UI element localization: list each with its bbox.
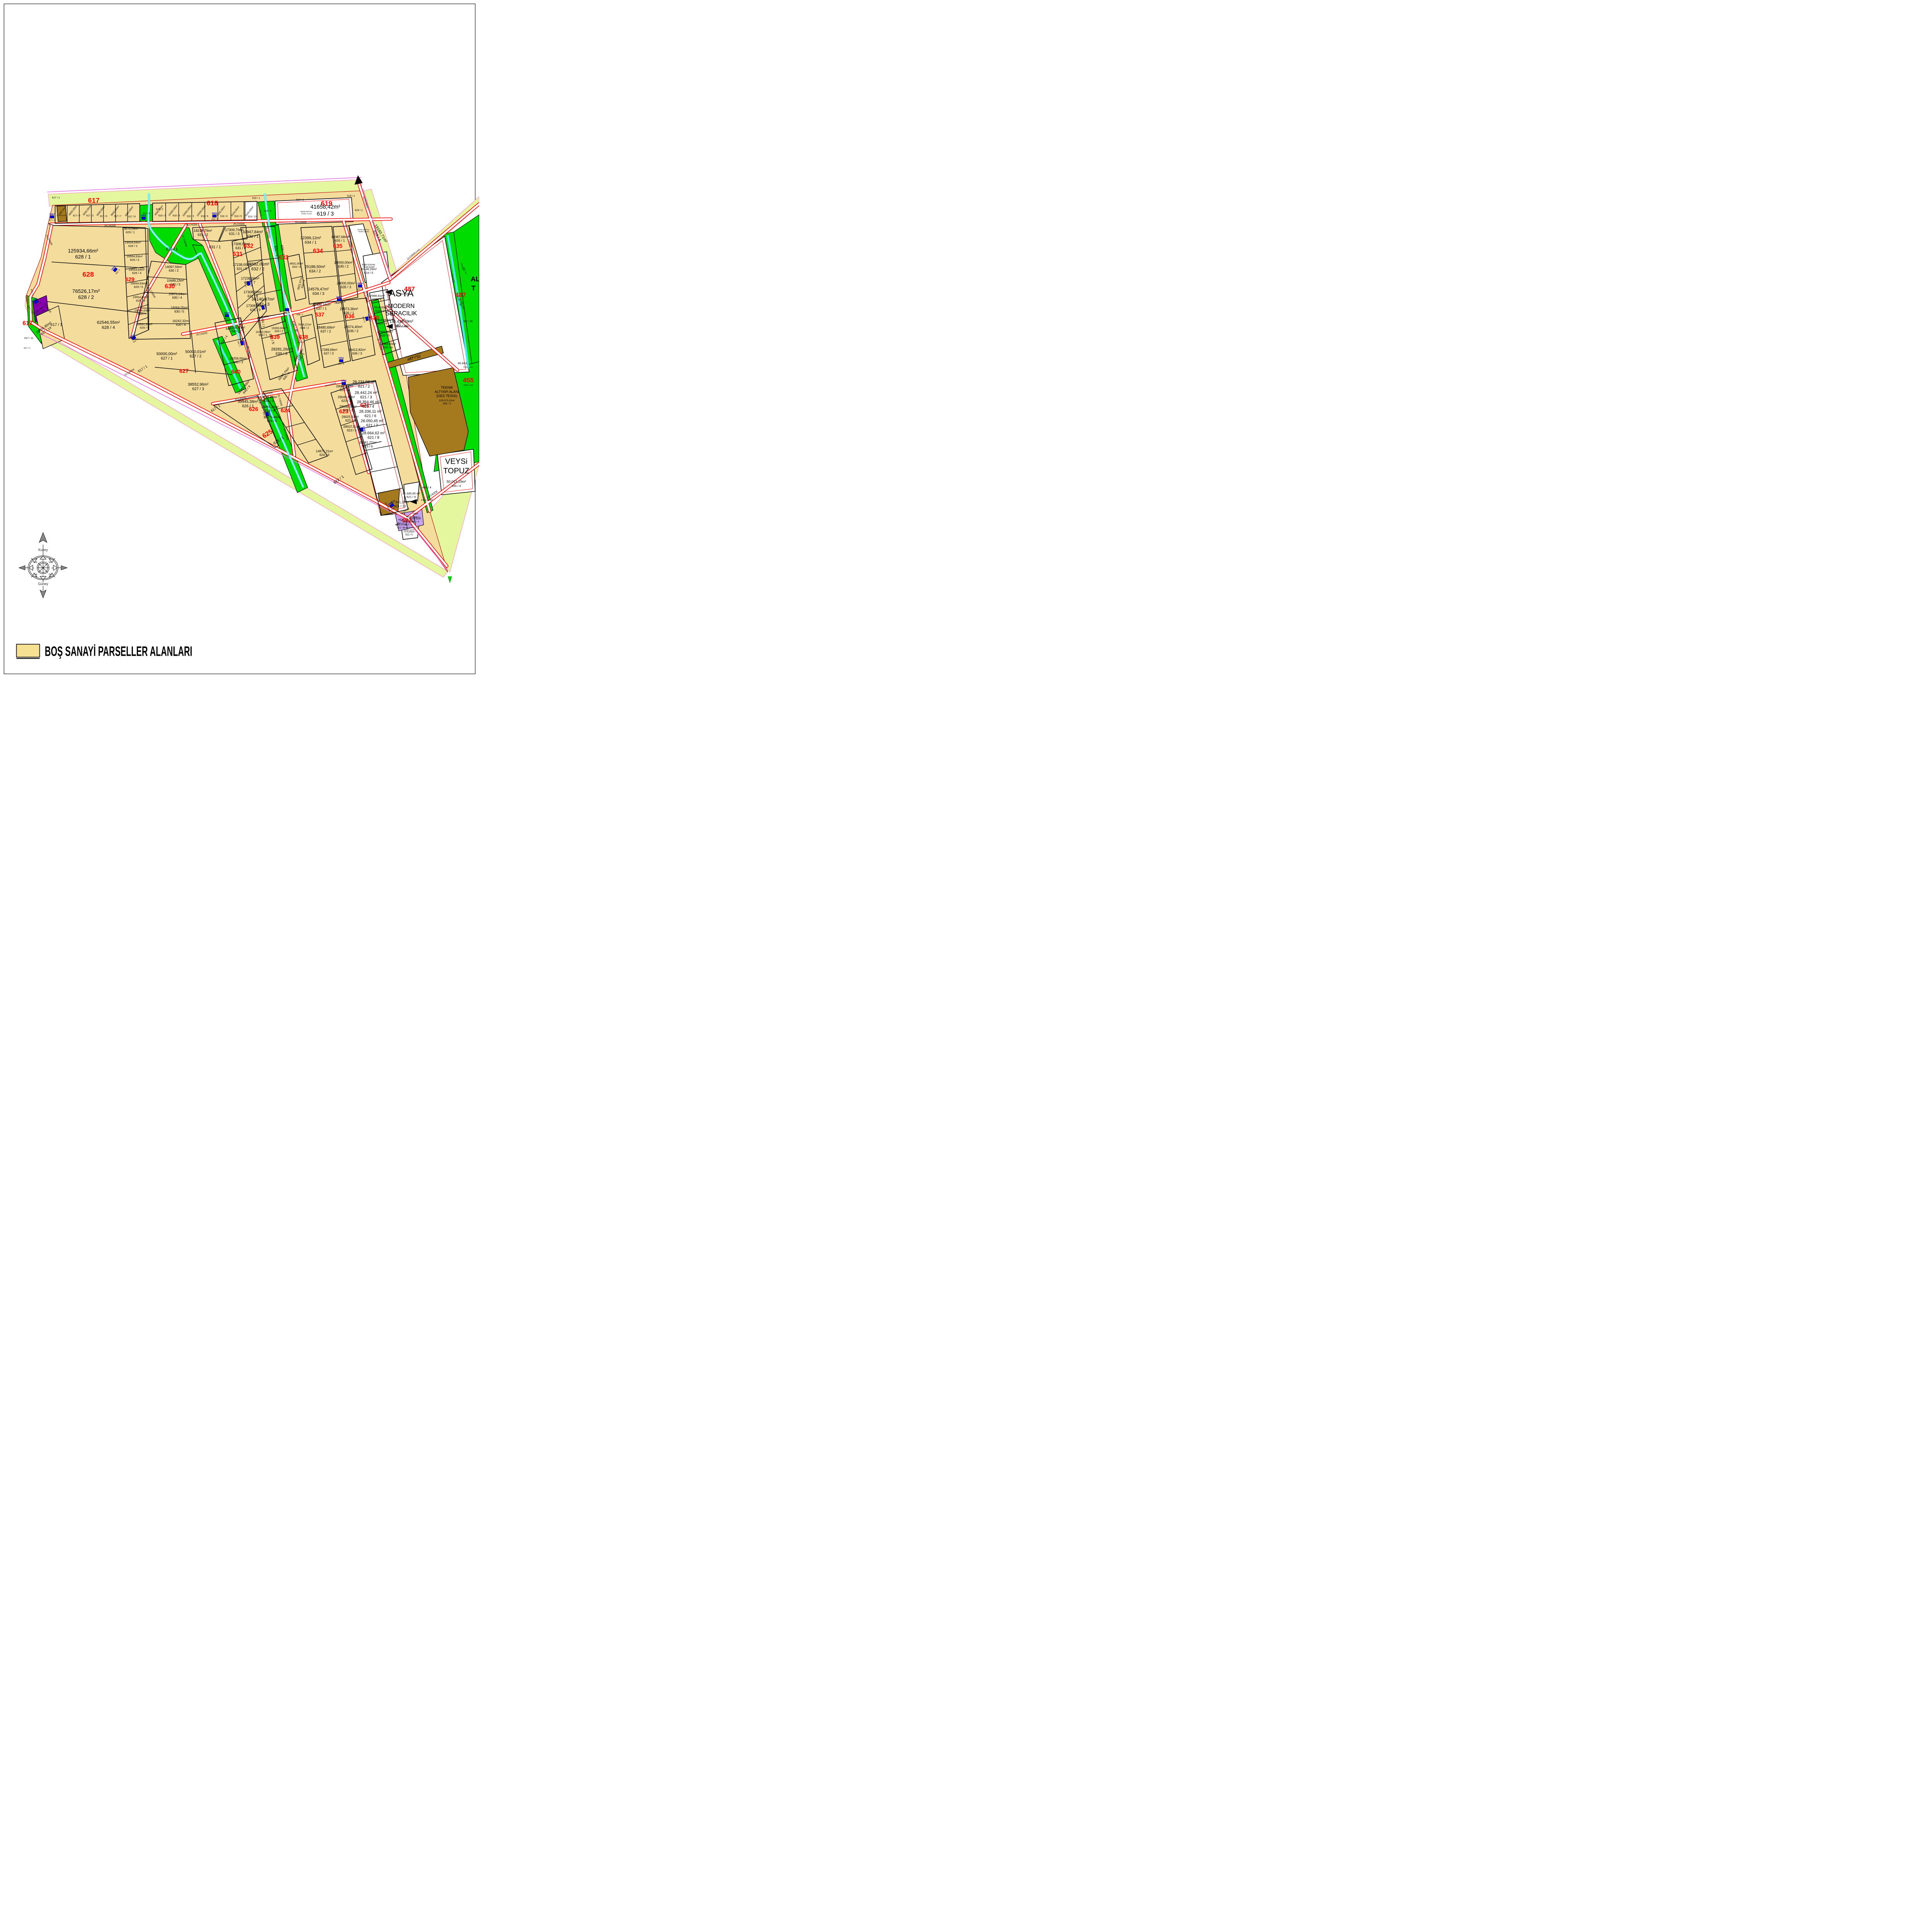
map-label: 618 / 3: [158, 214, 166, 217]
map-label: 631 / 1: [209, 245, 221, 249]
dm-name: DM32: [225, 312, 230, 315]
block-number: 634: [313, 248, 323, 255]
dm-parcel-id: 617 / 10: [140, 221, 147, 223]
zone-label-line: 41658,42m²: [310, 204, 340, 210]
zone-label-line: 4000,00m²: [410, 518, 421, 520]
map-label: T: [471, 284, 476, 292]
dm-marker-icon: [142, 217, 146, 219]
block-number: 635: [333, 243, 342, 249]
map-label: 617 / 11: [24, 337, 34, 340]
zone-label: İDARİ-SOSYALTESİS ALANI: [357, 228, 369, 233]
block-number: 617: [22, 320, 32, 327]
zone-label: İDARİ-SOSYALTESİS ALANI: [300, 210, 312, 214]
block-number: 637: [315, 312, 324, 318]
dm-parcel-id: 637 / 4: [338, 363, 344, 366]
map-label: 26.CADDE: [295, 221, 306, 224]
map-label: 617 / 8: [128, 215, 136, 218]
dm-name: DM35: [341, 380, 347, 383]
zone-label-line: VEYSi: [445, 457, 468, 466]
map-label: 618 / 5: [187, 215, 194, 218]
map-label: 619 / 1: [296, 199, 304, 201]
dm-marker-icon: [342, 382, 346, 385]
block-number: 633: [279, 254, 289, 261]
dm-marker-icon: [213, 215, 216, 218]
zone-label-line: 26146,29m²: [361, 267, 377, 271]
compass-rose: Kuzey Güney KKDDGDGGBBKB: [19, 532, 67, 598]
compass-point-label: K: [43, 560, 44, 562]
zone-label-line: 455 / 4: [452, 484, 461, 488]
compass-point-label: G: [42, 575, 44, 578]
compass-south-label: Güney: [38, 582, 48, 586]
zone-label-line: İDARİ-SOSYAL: [357, 228, 369, 231]
map-label: 65.843,: [458, 362, 468, 365]
zone-label-line: SERACILIK: [386, 310, 417, 317]
map-label: 617 / 1: [52, 197, 60, 199]
block-number: 455: [463, 376, 474, 384]
block-number: 624: [281, 408, 290, 414]
map-label: 617 / 7: [114, 215, 122, 218]
zone-label-line: TEKNiK: [441, 386, 453, 389]
block-number: 627: [179, 368, 189, 374]
dm-marker-icon: [50, 216, 54, 218]
block-number: 640: [231, 369, 241, 375]
legend-swatch: [17, 644, 40, 657]
zone-label-line: 455 / 3: [443, 403, 451, 405]
dm-name: DM27: [49, 213, 55, 216]
block-number: 618: [207, 199, 218, 207]
zone-label-line: İDARİ-SOSYAL: [362, 264, 376, 266]
block-number: 638: [299, 334, 308, 340]
site-plan-map: 26.CADDE26.CADDE26.CADDE26.CADDE25.CADDE…: [0, 0, 479, 678]
zone-label-line: 619 / 5: [364, 271, 373, 275]
zone-label-line: 622 / 5: [405, 533, 413, 536]
map-label: 455 / 4: [422, 486, 431, 489]
dm-marker-icon: [225, 315, 229, 317]
zone-label-line: TOPUZ: [443, 467, 469, 475]
zone-label-line: (GES TESiSi): [436, 394, 457, 398]
gate-label: 8 NOLU KAPI: [421, 499, 433, 502]
map-label: 618 / 6: [201, 215, 208, 218]
dm-name: DM21: [337, 296, 342, 299]
dm-marker-icon: [337, 299, 341, 301]
dm-parcel-id: 617 / 3: [49, 219, 55, 221]
zone-label-line: İDARİ-SOSYAL: [403, 526, 415, 529]
block-number: 628: [82, 270, 94, 278]
map-label: 26.CADDE: [104, 224, 116, 227]
dm-name: DM26: [141, 215, 146, 217]
block-number: 617: [88, 197, 100, 204]
map-label: 618 / 1: [252, 197, 260, 200]
dm-marker-icon: [339, 359, 343, 362]
map-label: 617 / 4: [73, 214, 80, 217]
block-number: 487: [455, 291, 466, 299]
zone-label-line: 622 / 3: [405, 524, 412, 526]
map-label: 617 / 1: [51, 323, 63, 327]
map-label: 617 / 5: [86, 214, 94, 217]
dm-parcel-id: 618 / 7: [211, 218, 218, 221]
legend-label: BOŞ SANAYİ PARSELLER ALANLARI: [45, 644, 192, 659]
compass-north-label: Kuzey: [38, 548, 48, 552]
map-label: 619 / 1: [355, 209, 363, 212]
zone-label-line: 7576,65m²: [403, 531, 415, 533]
dm-name: DM20: [357, 282, 363, 285]
zone-label-line: ALTYAPI ALANI: [435, 390, 459, 394]
compass-point-label: KD: [49, 561, 52, 564]
zone-label-line: 619 / 3: [317, 211, 334, 217]
map-label: 619 / 1: [347, 195, 355, 197]
map-label: YEŞİL ALAN: [463, 366, 473, 368]
zone-label-line: MODERN: [388, 303, 415, 310]
dm-name: DM25: [212, 213, 217, 215]
map-label: AL: [471, 275, 479, 283]
south-tip-marker-icon: [448, 577, 452, 583]
map-label: 618 / 10: [248, 215, 257, 218]
dm-parcel-id: 621 / 1: [341, 386, 347, 388]
map-label: 619 / 2: [264, 210, 271, 213]
zone-label: VEYSiTOPUZ50.013,19m²455 / 4: [443, 457, 469, 488]
map-label: 618 / 4: [173, 214, 180, 217]
map-label: 617 / 1: [24, 347, 31, 350]
map-label: 26.CADDE: [186, 224, 197, 226]
zone-label-line: TESİS ALANI: [301, 213, 312, 215]
gate-label: 9 NOLU KAPI: [397, 326, 409, 328]
map-label: 487 / 39: [463, 320, 473, 323]
dm-parcel-id: 634 / 4: [336, 302, 342, 304]
map-sheet: 26.CADDE26.CADDE26.CADDE26.CADDE25.CADDE…: [0, 0, 479, 678]
block-number: 639: [271, 334, 280, 340]
zone-label-line: TESİS ALANI: [358, 230, 369, 233]
zone-label-line: HDA: [413, 513, 419, 515]
zone-label-line: 622 / 4: [412, 520, 419, 523]
dm-name: DM34: [339, 357, 344, 360]
dm-parcel-id: 619 / 6: [357, 288, 363, 291]
compass-point-label: D: [52, 567, 53, 570]
compass-point-label: KB: [34, 561, 37, 564]
block-number: 631: [233, 251, 243, 257]
compass-point-label: B: [32, 567, 34, 570]
dm-marker-icon: [358, 285, 362, 287]
map-label: 617 / 6: [100, 215, 107, 218]
dm-parcel-id: 632 / 4: [284, 312, 290, 314]
map-label: 26.CADDE: [233, 223, 245, 225]
map-label: 618 / 8: [220, 215, 228, 218]
zone-label-line: 135.476,49m²: [390, 320, 413, 324]
gate-label: 10 NOLU KAPI: [396, 293, 409, 296]
zone-label-line: 109.073,32m²: [439, 399, 455, 402]
zone-label-line: 50.013,19m²: [447, 480, 466, 483]
dm-parcel-id: 640 / 5: [224, 318, 230, 320]
map-label: 638 / 1: [297, 314, 303, 316]
zone-label-line: İDARİ-SOSYAL: [300, 210, 312, 213]
map-label: YEŞİL ALAN: [463, 384, 473, 386]
map-label: 618 / 9: [235, 215, 242, 218]
dm-marker-icon: [285, 308, 289, 311]
map-label: 630 / 1: [166, 247, 178, 252]
legend: BOŞ SANAYİ PARSELLER ALANLARI: [17, 644, 192, 659]
map-label: (SU DEPOSU): [57, 214, 67, 216]
map-label: 639 / 6: [298, 342, 304, 344]
compass-point-label: GD: [49, 573, 52, 576]
compass-point-label: GB: [34, 573, 37, 576]
